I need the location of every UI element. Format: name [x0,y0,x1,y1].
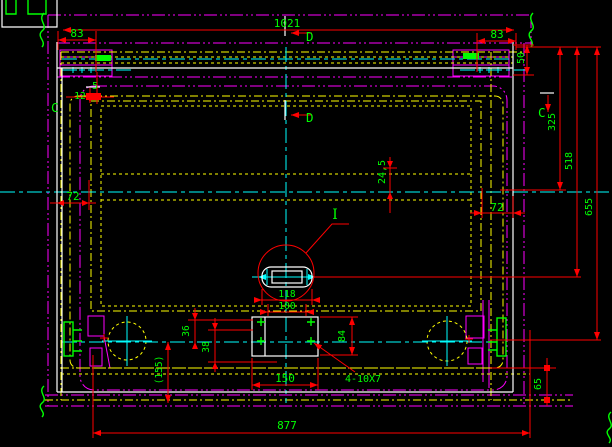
dim-155-label: (155) [154,356,165,385]
dim-83-left-label: 83 [70,27,83,40]
dim-38-label: 38 [201,341,212,353]
mounting-plate [252,317,318,356]
cad-canvas: 1021 83 83 D D C C 5 12 72 72 50 325 518… [0,0,612,447]
hardware-layer [6,0,611,443]
holes-note-label: 4-10X7 [345,374,381,385]
section-c-left-label: C [51,100,59,115]
hinge-bottom-right [466,316,484,338]
dim-518-label: 518 [564,152,575,170]
section-d-mid-label: D [306,110,314,125]
dim-65-label: 65 [533,378,544,390]
dim-83-right-label: 83 [490,28,503,41]
cad-viewport: 1021 83 83 D D C C 5 12 72 72 50 325 518… [0,0,612,447]
dimension-layer [50,30,601,438]
dim-150-label: 150 [275,372,295,385]
dim-118-label: 118 [278,289,295,300]
dim-655-label: 655 [584,198,595,216]
window-frame-phantom [80,86,507,390]
dim-877-label: 877 [277,419,297,432]
break-line-bottom-right [607,412,611,443]
corner-dim-arrows [86,93,101,100]
hinge-bottom-left [88,316,104,336]
dim-72-left-label: 72 [66,190,79,203]
bracket-bottom-left [64,322,82,356]
cutoff-view-parts [6,0,46,14]
centerline-layer [0,47,612,403]
detail-i-label: I [332,207,338,223]
dim-12-label: 12 [74,91,85,102]
dim-100-label: 100 [278,301,295,312]
dim-84-label: 84 [337,330,348,342]
section-c-right-label: C [538,105,546,120]
dim-325-label: 325 [547,113,558,131]
dim-72-right-label: 72 [490,201,503,214]
section-d-top-label: D [306,29,314,44]
break-line-top-left [40,13,44,47]
detail-leader [306,224,349,253]
dim-5-label: 5 [92,81,98,92]
dim-50-label: 50 [516,52,527,64]
break-line-top-right [529,13,533,47]
hidden-line-layer [45,52,573,400]
break-line-bottom-left [40,386,44,417]
dim-36-label: 36 [181,325,192,337]
dim-24-5-label: 24,5 [377,160,388,184]
dim-1021-label: 1021 [274,17,301,30]
hinge-pin-left [95,55,111,61]
